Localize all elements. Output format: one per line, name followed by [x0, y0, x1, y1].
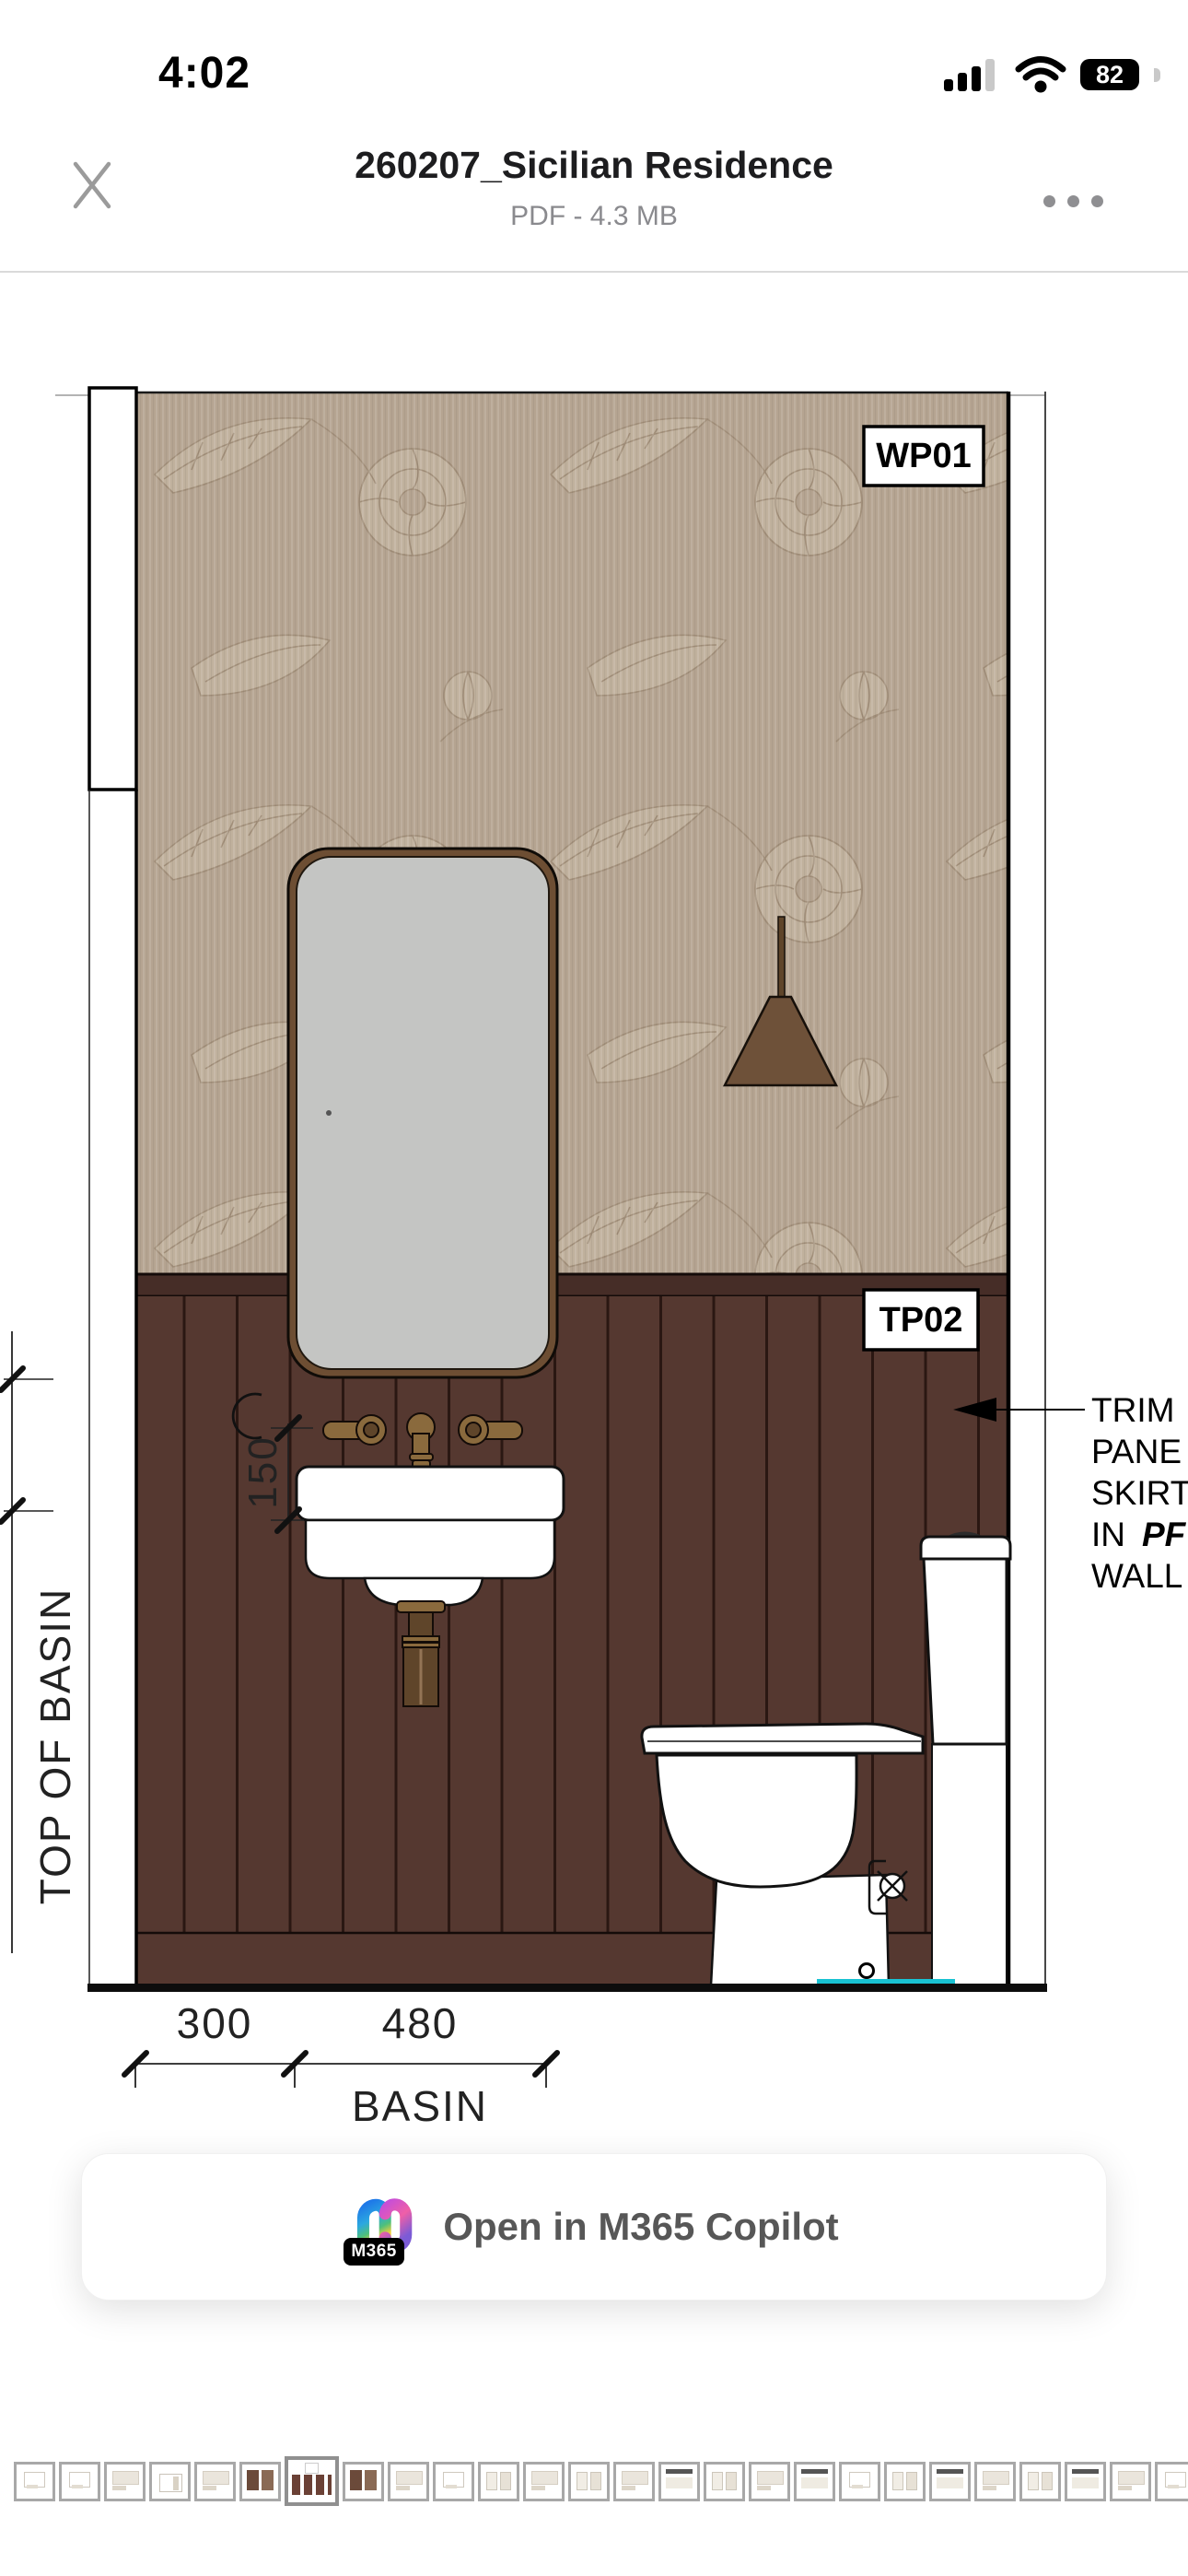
page-thumbnail[interactable]: [194, 2462, 236, 2501]
page-thumbnail[interactable]: [1155, 2462, 1188, 2501]
page-thumbnail[interactable]: [704, 2462, 745, 2501]
open-in-copilot-button[interactable]: M365 Open in M365 Copilot: [81, 2153, 1107, 2301]
svg-text:IN: IN: [1091, 1516, 1125, 1553]
page-thumbnail[interactable]: [343, 2462, 384, 2501]
page-thumbnail[interactable]: [613, 2462, 655, 2501]
page-thumbnail[interactable]: [658, 2462, 700, 2501]
page-thumbnail[interactable]: [523, 2462, 565, 2501]
bottom-dimension-chain: [124, 2053, 557, 2088]
page-thumbnail[interactable]: [59, 2462, 100, 2501]
left-wall-section: [89, 388, 136, 1985]
toilet-seat: [642, 1724, 923, 1753]
page-thumbnail[interactable]: [839, 2462, 880, 2501]
dim-basin-caption: BASIN: [352, 2082, 488, 2130]
svg-text:WP01: WP01: [876, 437, 971, 475]
mirror: [288, 849, 557, 1377]
drain-point: [860, 1964, 874, 1978]
cistern-base: [932, 1744, 1007, 1985]
iphone-screen: 4:02 82 260207_Sicilian: [0, 0, 1188, 2576]
dim-150: 150: [240, 1435, 285, 1508]
cistern-tank: [924, 1559, 1007, 1744]
floor-line: [87, 1984, 1047, 1992]
page-thumbnail[interactable]: [478, 2462, 519, 2501]
mirror-mark: [326, 1110, 332, 1116]
page-thumbnail-selected[interactable]: [285, 2456, 339, 2506]
page-thumbnail[interactable]: [1065, 2462, 1106, 2501]
page-thumbnail[interactable]: [14, 2462, 55, 2501]
svg-text:TP02: TP02: [879, 1301, 963, 1340]
svg-text:PF: PF: [1142, 1516, 1187, 1553]
page-thumbnail[interactable]: [568, 2462, 610, 2501]
timber-panel-tag: TP02: [864, 1290, 978, 1350]
wallpaper-tag: WP01: [864, 427, 984, 486]
page-thumbnail[interactable]: [884, 2462, 926, 2501]
dim-300: 300: [177, 1999, 253, 2047]
page-thumbnail[interactable]: [433, 2462, 474, 2501]
wallpaper-region: [136, 392, 1008, 1274]
copilot-button-label: Open in M365 Copilot: [443, 2205, 838, 2249]
svg-text:PANE: PANE: [1091, 1433, 1182, 1470]
page-thumbnail[interactable]: [149, 2462, 191, 2501]
page-thumbnail[interactable]: [749, 2462, 790, 2501]
svg-text:TRIM: TRIM: [1091, 1391, 1174, 1429]
page-thumbnail[interactable]: [104, 2462, 146, 2501]
dim-480: 480: [382, 1999, 459, 2047]
page-thumbnail-strip[interactable]: [0, 2449, 1188, 2513]
m365-badge: M365: [344, 2238, 404, 2266]
left-level-dimension: TOP OF BASIN: [1, 1331, 79, 1953]
page-thumbnail[interactable]: [239, 2462, 281, 2501]
page-thumbnail[interactable]: [388, 2462, 429, 2501]
cistern-lid: [921, 1537, 1010, 1559]
m365-copilot-logo: M365: [349, 2188, 419, 2266]
page-thumbnail[interactable]: [1019, 2462, 1061, 2501]
svg-text:SKIRT: SKIRT: [1091, 1474, 1188, 1512]
page-thumbnail[interactable]: [794, 2462, 835, 2501]
dim-top-of-basin: TOP OF BASIN: [31, 1587, 79, 1904]
page-thumbnail[interactable]: [1110, 2462, 1151, 2501]
page-thumbnail[interactable]: [929, 2462, 971, 2501]
svg-text:WALL: WALL: [1091, 1557, 1182, 1595]
page-thumbnail[interactable]: [974, 2462, 1016, 2501]
